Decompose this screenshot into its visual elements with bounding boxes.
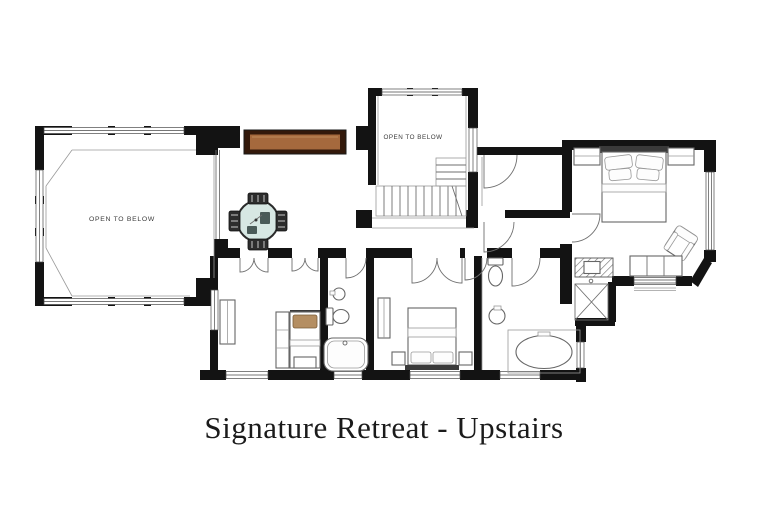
dresser [220, 300, 235, 344]
stairs [376, 158, 466, 216]
railing [216, 150, 220, 239]
shower-stall [575, 284, 608, 320]
floorplan-page: OPEN TO BELOW OPEN TO BELOW Signature Re… [0, 0, 768, 512]
dining-chair-bottom [248, 239, 268, 250]
open-to-below-label-stairwell: OPEN TO BELOW [383, 134, 442, 141]
queen-bed [405, 308, 459, 370]
master-tub [508, 330, 580, 373]
queen-dresser [378, 298, 390, 338]
wood-console [244, 130, 346, 154]
nightstand-right [668, 148, 694, 165]
bath1-toilet [326, 308, 349, 325]
open-to-below-label-main: OPEN TO BELOW [89, 216, 155, 223]
plan-title: Signature Retreat - Upstairs [0, 410, 768, 446]
bath1-tub [324, 338, 368, 371]
dining-chair-top [248, 193, 268, 204]
dining-table [238, 201, 279, 242]
twin-bed [290, 310, 320, 368]
bench-seat [630, 256, 682, 276]
master-bed [599, 146, 669, 222]
queen-nightstand-right [459, 352, 472, 365]
nightstand-left [574, 148, 600, 165]
dining-chair-left [229, 211, 240, 231]
dining-set [229, 193, 287, 250]
side-shelf-unit [276, 312, 289, 368]
bath1-sink [330, 288, 345, 300]
queen-nightstand-left [392, 352, 405, 365]
wc-toilet [488, 258, 503, 286]
fireplace [575, 258, 613, 283]
pedestal-sink [489, 306, 505, 324]
doors [240, 155, 600, 286]
dining-chair-right [276, 211, 287, 231]
